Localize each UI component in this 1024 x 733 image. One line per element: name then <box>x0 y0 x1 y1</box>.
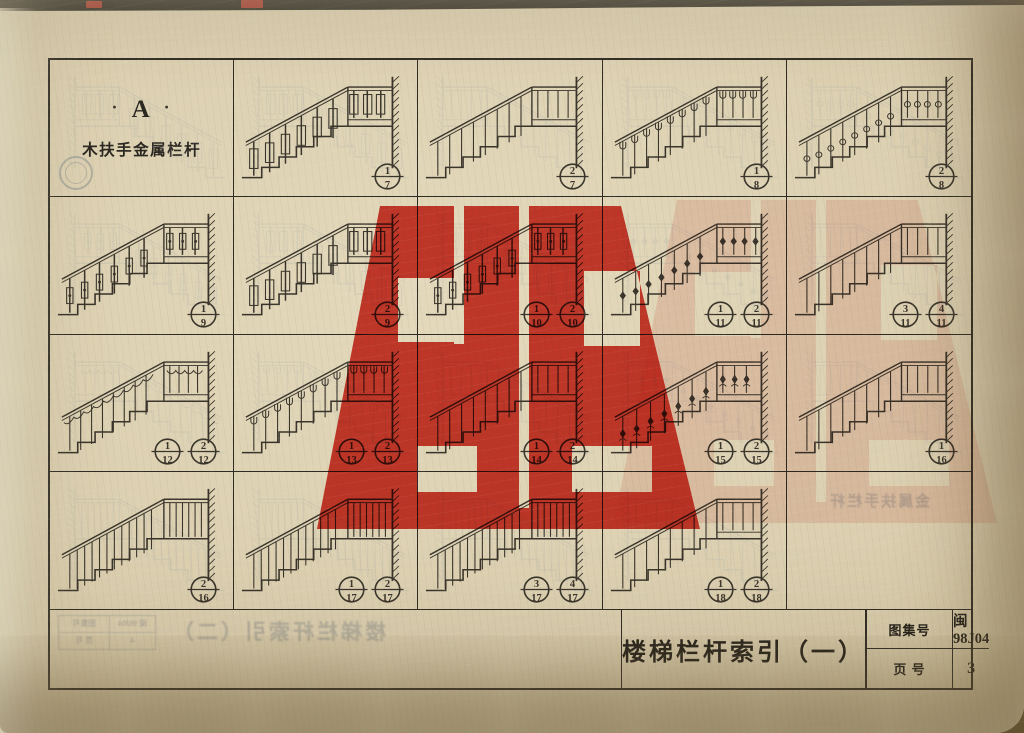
bleedthrough-sheet-title: 楼梯栏杆索引（二） <box>170 616 386 646</box>
svg-text:3: 3 <box>903 303 908 314</box>
grid-cell-drawing: 1 12 2 12 <box>50 335 234 472</box>
detail-ref-badge: 2 10 <box>556 299 589 330</box>
dot: · <box>100 97 132 117</box>
svg-text:10: 10 <box>567 318 578 329</box>
svg-text:2: 2 <box>754 441 759 452</box>
svg-text:3: 3 <box>533 579 538 590</box>
detail-refs: 2 7 <box>556 161 589 192</box>
svg-text:11: 11 <box>937 318 947 329</box>
grid-cell-drawing: 3 11 4 11 <box>787 197 971 334</box>
grid-cell-drawing: 1 11 2 11 <box>603 197 787 334</box>
svg-text:13: 13 <box>383 455 394 466</box>
detail-ref-badge: 2 12 <box>187 436 220 467</box>
svg-text:2: 2 <box>754 303 759 314</box>
drawing-sheet: ·A·木扶手金属栏杆 1 7 2 7 1 8 2 <box>48 58 973 690</box>
detail-ref-badge: 3 17 <box>520 574 553 605</box>
page-number-value: 3 <box>953 649 989 688</box>
svg-text:2: 2 <box>201 441 206 452</box>
grid-cell-drawing: 2 8 <box>787 60 971 197</box>
svg-text:2: 2 <box>569 441 574 452</box>
page-number-label: 页 号 <box>867 649 953 688</box>
detail-ref-badge: 2 8 <box>925 161 958 192</box>
detail-ref-badge: 2 7 <box>556 161 589 192</box>
svg-text:14: 14 <box>531 455 542 466</box>
title-strip: 闽 98J04 图集号 4 页 号 楼梯栏杆索引（二） 楼梯栏杆索引（一） 图集… <box>50 609 971 688</box>
book-edge-strip <box>0 0 1024 11</box>
detail-ref-badge: 1 10 <box>520 299 553 330</box>
svg-text:1: 1 <box>754 166 759 177</box>
grid-cell-section-label: ·A·木扶手金属栏杆 <box>50 60 234 197</box>
grid-cell-drawing: 3 17 4 17 <box>418 472 602 609</box>
svg-text:17: 17 <box>531 593 542 604</box>
svg-text:17: 17 <box>383 593 394 604</box>
detail-refs: 1 11 2 11 <box>704 299 773 330</box>
svg-text:18: 18 <box>715 593 726 604</box>
grid-cell-drawing: 1 8 <box>603 60 787 197</box>
ghost-page-label: 页 号 <box>59 633 109 650</box>
detail-ref-badge: 1 7 <box>371 161 404 192</box>
faint-stamp-seal <box>59 156 93 190</box>
detail-ref-badge: 2 11 <box>740 299 773 330</box>
svg-text:9: 9 <box>385 318 390 329</box>
svg-text:2: 2 <box>385 303 390 314</box>
detail-refs: 1 10 2 10 <box>520 299 589 330</box>
detail-refs: 1 15 2 15 <box>704 436 773 467</box>
detail-ref-badge: 1 17 <box>335 574 368 605</box>
detail-ref-badge: 4 11 <box>925 299 958 330</box>
detail-ref-badge: 2 17 <box>371 574 404 605</box>
detail-refs: 1 17 2 17 <box>335 574 404 605</box>
svg-text:10: 10 <box>531 318 542 329</box>
section-letter: ·A· <box>50 96 233 124</box>
svg-text:2: 2 <box>201 579 206 590</box>
svg-text:1: 1 <box>349 441 354 452</box>
grid-cell-drawing: 1 9 <box>50 197 234 334</box>
svg-text:7: 7 <box>569 180 574 191</box>
grid-cell-drawing: 1 17 2 17 <box>234 472 418 609</box>
index-grid: ·A·木扶手金属栏杆 1 7 2 7 1 8 2 <box>50 60 971 609</box>
red-ink-mark <box>241 0 263 8</box>
grid-cell-drawing: 2 9 <box>234 197 418 334</box>
grid-cell-drawing: 1 7 <box>234 60 418 197</box>
svg-text:7: 7 <box>385 180 390 191</box>
detail-ref-badge: 2 14 <box>556 436 589 467</box>
svg-text:18: 18 <box>751 593 762 604</box>
grid-cell-drawing: 1 15 2 15 <box>603 335 787 472</box>
svg-text:2: 2 <box>385 579 390 590</box>
detail-refs: 1 9 <box>187 299 220 330</box>
grid-cell-empty: 金属扶手栏杆 <box>787 472 971 609</box>
grid-cell-drawing: 1 16 <box>787 335 971 472</box>
svg-text:2: 2 <box>385 441 390 452</box>
detail-ref-badge: 2 15 <box>740 436 773 467</box>
svg-text:1: 1 <box>201 303 206 314</box>
svg-text:1: 1 <box>718 303 723 314</box>
svg-text:17: 17 <box>347 593 358 604</box>
detail-refs: 1 13 2 13 <box>335 436 404 467</box>
detail-ref-badge: 1 14 <box>520 436 553 467</box>
ghost-atlas-value: 闽 98J04 <box>109 616 155 633</box>
detail-refs: 3 17 4 17 <box>520 574 589 605</box>
detail-refs: 2 16 <box>187 574 220 605</box>
grid-cell-drawing: 1 14 2 14 <box>418 335 602 472</box>
svg-text:17: 17 <box>567 593 578 604</box>
scanned-page-photo: ·A·木扶手金属栏杆 1 7 2 7 1 8 2 <box>0 0 1024 733</box>
svg-text:2: 2 <box>569 303 574 314</box>
detail-ref-badge: 1 12 <box>151 436 184 467</box>
detail-ref-badge: 2 9 <box>371 299 404 330</box>
svg-text:2: 2 <box>939 166 944 177</box>
dot: · <box>152 97 184 117</box>
detail-refs: 1 18 2 18 <box>704 574 773 605</box>
grid-cell-drawing: 1 10 2 10 <box>418 197 602 334</box>
svg-text:12: 12 <box>162 455 173 466</box>
svg-text:1: 1 <box>349 579 354 590</box>
svg-text:1: 1 <box>165 441 170 452</box>
svg-text:4: 4 <box>569 579 575 590</box>
svg-text:13: 13 <box>347 455 358 466</box>
page-fold-highlight <box>0 8 36 733</box>
detail-ref-badge: 1 15 <box>704 436 737 467</box>
grid-cell-drawing: 2 7 <box>418 60 602 197</box>
detail-refs: 2 8 <box>925 161 958 192</box>
sheet-title: 楼梯栏杆索引（一） <box>622 610 867 688</box>
detail-refs: 1 12 2 12 <box>151 436 220 467</box>
bleedthrough-title-block: 闽 98J04 图集号 4 页 号 <box>58 615 156 650</box>
svg-text:4: 4 <box>939 303 945 314</box>
detail-ref-badge: 2 18 <box>740 574 773 605</box>
svg-text:15: 15 <box>751 455 762 466</box>
detail-refs: 2 9 <box>371 299 404 330</box>
detail-refs: 1 14 2 14 <box>520 436 589 467</box>
svg-text:2: 2 <box>569 166 574 177</box>
svg-text:1: 1 <box>533 303 538 314</box>
svg-text:11: 11 <box>751 318 761 329</box>
svg-text:1: 1 <box>533 441 538 452</box>
detail-refs: 1 16 <box>925 436 958 467</box>
grid-cell-drawing: 2 16 <box>50 472 234 609</box>
svg-text:15: 15 <box>715 455 726 466</box>
atlas-number-label: 图集号 <box>867 610 953 649</box>
detail-ref-badge: 1 11 <box>704 299 737 330</box>
title-strip-empty-cell: 闽 98J04 图集号 4 页 号 楼梯栏杆索引（二） <box>50 610 622 688</box>
svg-text:1: 1 <box>385 166 390 177</box>
grid-cell-drawing: 1 18 2 18 <box>603 472 787 609</box>
svg-text:14: 14 <box>567 455 578 466</box>
detail-ref-badge: 1 18 <box>704 574 737 605</box>
detail-refs: 1 8 <box>740 161 773 192</box>
svg-text:9: 9 <box>201 318 206 329</box>
svg-text:11: 11 <box>901 318 911 329</box>
title-block: 图集号 闽 98J04 页 号 3 <box>867 610 989 688</box>
svg-text:1: 1 <box>939 441 944 452</box>
bleedthrough-text: 金属扶手栏杆 <box>787 490 971 511</box>
ghost-atlas-label: 图集号 <box>59 616 109 633</box>
svg-text:1: 1 <box>718 579 723 590</box>
svg-text:11: 11 <box>715 318 725 329</box>
detail-ref-badge: 3 11 <box>889 299 922 330</box>
atlas-number-value: 闽 98J04 <box>953 610 989 649</box>
detail-ref-badge: 4 17 <box>556 574 589 605</box>
detail-ref-badge: 2 13 <box>371 436 404 467</box>
red-ink-mark <box>86 1 102 8</box>
detail-ref-badge: 1 13 <box>335 436 368 467</box>
ghost-page-value: 4 <box>109 633 155 650</box>
svg-text:12: 12 <box>198 455 209 466</box>
svg-text:2: 2 <box>754 579 759 590</box>
svg-text:8: 8 <box>939 180 944 191</box>
svg-text:1: 1 <box>718 441 723 452</box>
svg-text:16: 16 <box>198 593 209 604</box>
detail-ref-badge: 2 16 <box>187 574 220 605</box>
grid-cell-drawing: 1 13 2 13 <box>234 335 418 472</box>
svg-text:8: 8 <box>754 180 759 191</box>
detail-ref-badge: 1 9 <box>187 299 220 330</box>
detail-refs: 3 11 4 11 <box>889 299 958 330</box>
svg-text:16: 16 <box>936 455 947 466</box>
detail-refs: 1 7 <box>371 161 404 192</box>
detail-ref-badge: 1 16 <box>925 436 958 467</box>
detail-ref-badge: 1 8 <box>740 161 773 192</box>
